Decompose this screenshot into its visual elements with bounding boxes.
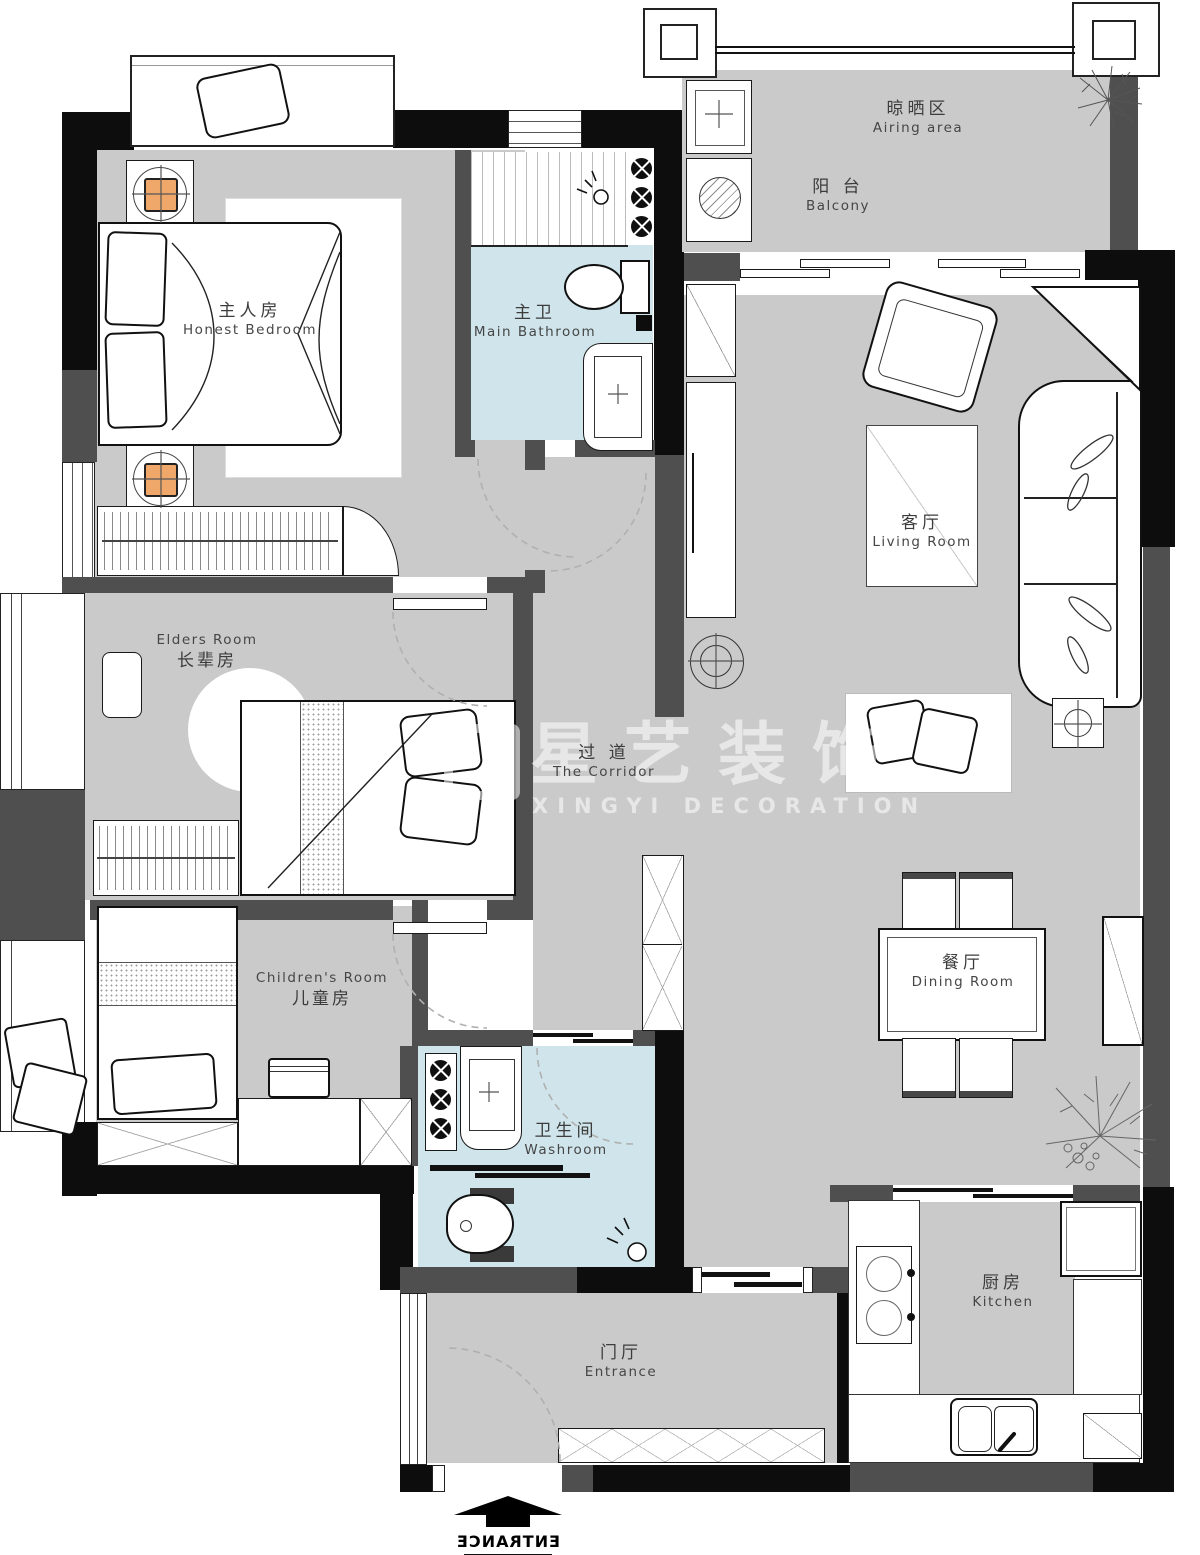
basin bbox=[695, 90, 745, 146]
fridge-inner bbox=[1066, 1207, 1136, 1271]
wall bbox=[562, 1465, 593, 1492]
wall bbox=[593, 1465, 850, 1492]
wall bbox=[393, 110, 508, 148]
tv-rug bbox=[866, 425, 978, 587]
label-balcony: 阳 台 Balcony bbox=[806, 176, 870, 216]
sliding-door-kitchen bbox=[893, 1185, 1073, 1200]
burner bbox=[866, 1300, 902, 1336]
sink-basin bbox=[994, 1406, 1034, 1452]
wall bbox=[684, 253, 740, 281]
cabinet-handle bbox=[692, 453, 694, 553]
kitchen-counter bbox=[1073, 1279, 1142, 1395]
label-corridor: 过 道 The Corridor bbox=[553, 742, 655, 782]
shower-screen bbox=[430, 1165, 563, 1171]
wardrobe-elders bbox=[93, 820, 239, 896]
side-table-circle bbox=[1064, 709, 1092, 737]
washing-machine bbox=[686, 158, 752, 242]
tall-cabinet bbox=[686, 382, 736, 618]
corridor-cabinet bbox=[642, 855, 684, 1031]
sliding-door-panel bbox=[734, 1282, 802, 1287]
toilet-bowl bbox=[446, 1194, 514, 1254]
sofa-seat-line bbox=[1024, 583, 1116, 585]
wall bbox=[62, 577, 393, 593]
valve-icon bbox=[631, 187, 652, 208]
wardrobe-rod bbox=[102, 540, 338, 542]
appliance bbox=[1083, 1413, 1142, 1459]
valve-icon bbox=[430, 1089, 451, 1110]
floor-lamp-inner bbox=[700, 645, 732, 677]
fridge bbox=[1060, 1201, 1142, 1277]
floor-plan: 星艺装饰 XINGYI DECORATION 主人房 Honest Bedroo… bbox=[0, 0, 1200, 1555]
kitchen-sink bbox=[950, 1398, 1038, 1456]
window-entrance bbox=[400, 1293, 427, 1465]
wall bbox=[487, 900, 533, 920]
dining-chair bbox=[959, 1038, 1013, 1098]
wall bbox=[513, 593, 533, 900]
valve-icon bbox=[631, 158, 652, 179]
label-washroom: 卫生间 Washroom bbox=[524, 1120, 607, 1160]
stove-knob bbox=[907, 1313, 915, 1321]
sliding-door-panel bbox=[893, 1188, 993, 1192]
wall bbox=[62, 370, 97, 462]
valve-icon bbox=[430, 1118, 451, 1139]
toilet-drain bbox=[460, 1220, 472, 1232]
column-core bbox=[660, 24, 698, 60]
door-jamb bbox=[803, 1267, 813, 1293]
side-table bbox=[1052, 698, 1104, 748]
basin bbox=[469, 1059, 515, 1131]
label-children-room: Children's Room 儿童房 bbox=[256, 970, 388, 1010]
floor-corridor bbox=[533, 593, 655, 733]
wall bbox=[1143, 547, 1170, 1187]
entrance-arrow-stem bbox=[486, 1514, 530, 1527]
sliding-door-panel bbox=[533, 1033, 593, 1037]
pillow bbox=[110, 1052, 218, 1115]
washroom-sink bbox=[460, 1046, 522, 1150]
blanket-band bbox=[99, 962, 236, 1006]
door-jamb bbox=[432, 1465, 445, 1492]
cabinet bbox=[686, 284, 736, 377]
label-living-room: 客厅 Living Room bbox=[872, 512, 971, 552]
lamp-base bbox=[144, 463, 178, 497]
door-leaf bbox=[393, 922, 487, 934]
basin bbox=[594, 356, 642, 438]
wall bbox=[62, 112, 97, 370]
armchair-seat bbox=[876, 297, 985, 399]
cabinet-cell bbox=[643, 946, 682, 1029]
jar bbox=[268, 1058, 330, 1098]
lamp-base bbox=[144, 178, 178, 212]
window bbox=[508, 110, 582, 148]
wall bbox=[455, 150, 471, 440]
balcony-parapet bbox=[715, 46, 1075, 48]
sliding-door-washroom bbox=[533, 1030, 633, 1046]
label-airing-area: 晾晒区 Airing area bbox=[873, 98, 963, 138]
vanity-sink bbox=[583, 343, 653, 451]
sofa-back-line bbox=[1116, 392, 1118, 698]
chair bbox=[102, 652, 142, 718]
column-core bbox=[1092, 20, 1136, 60]
nightstand bbox=[126, 160, 194, 228]
wall bbox=[655, 1030, 684, 1270]
sliding-door-panel bbox=[573, 1039, 633, 1043]
sliding-door-panel bbox=[702, 1272, 770, 1277]
balcony-sink bbox=[686, 80, 752, 154]
wall bbox=[0, 790, 85, 940]
shoe-cabinet-cells bbox=[559, 1429, 824, 1462]
window bbox=[62, 462, 95, 583]
wall bbox=[655, 455, 684, 717]
dining-chair bbox=[902, 872, 956, 932]
toilet-tank bbox=[620, 260, 650, 314]
entrance-arrow-icon bbox=[454, 1496, 562, 1515]
washer-drum bbox=[699, 177, 741, 219]
wall bbox=[400, 1267, 577, 1293]
shower-screen bbox=[475, 1173, 590, 1178]
wall bbox=[813, 1267, 850, 1293]
label-entrance-hall: 门厅 Entrance bbox=[585, 1342, 658, 1382]
cabinet bbox=[360, 1098, 412, 1166]
cabinet-cell bbox=[643, 856, 682, 945]
pillow bbox=[399, 707, 484, 778]
pillow bbox=[399, 775, 484, 846]
wardrobe-rod bbox=[97, 857, 235, 859]
dining-chair bbox=[959, 872, 1013, 932]
shoe-cabinet bbox=[558, 1428, 825, 1463]
cushion bbox=[911, 707, 980, 776]
floor-entrance-upper bbox=[684, 1185, 850, 1267]
wall bbox=[400, 1465, 432, 1492]
sliding-door-panel bbox=[800, 259, 890, 268]
wall bbox=[455, 440, 475, 457]
label-elders-room: Elders Room 长辈房 bbox=[157, 632, 258, 672]
sliding-door-panel bbox=[1000, 269, 1080, 278]
bench bbox=[97, 1122, 238, 1166]
valve-icon bbox=[430, 1060, 451, 1081]
wall bbox=[582, 110, 654, 148]
wall bbox=[428, 1030, 533, 1046]
pillow bbox=[104, 331, 167, 429]
label-main-bathroom: 主卫 Main Bathroom bbox=[474, 302, 596, 342]
sofa-seat-line bbox=[1024, 497, 1116, 499]
wall-accent bbox=[636, 315, 652, 331]
sink-basin bbox=[958, 1406, 992, 1452]
label-master-bedroom: 主人房 Honest Bedroom bbox=[183, 300, 317, 340]
wall bbox=[655, 252, 684, 455]
dining-chair bbox=[902, 1038, 956, 1098]
wall bbox=[1110, 77, 1138, 255]
wall bbox=[487, 577, 530, 593]
stove bbox=[856, 1246, 912, 1344]
nightstand bbox=[126, 445, 194, 513]
door-leaf bbox=[393, 598, 487, 610]
sideboard bbox=[1102, 916, 1144, 1046]
bay-window bbox=[0, 593, 85, 790]
valve-icon bbox=[631, 216, 652, 237]
floor-lamp bbox=[690, 635, 744, 689]
desk bbox=[238, 1098, 360, 1166]
wall bbox=[850, 1463, 1093, 1492]
sliding-door-panel bbox=[740, 269, 830, 278]
label-dining-room: 餐厅 Dining Room bbox=[912, 952, 1015, 992]
wall bbox=[663, 700, 684, 717]
sliding-door-panel bbox=[938, 259, 1026, 268]
wall bbox=[1093, 1463, 1174, 1492]
pillow bbox=[104, 231, 167, 327]
sofa bbox=[1018, 380, 1142, 708]
sliding-door-entrance bbox=[702, 1267, 803, 1293]
wardrobe-master bbox=[97, 506, 343, 576]
burner bbox=[866, 1256, 902, 1292]
entrance-label: ENTRANCE bbox=[452, 1532, 564, 1551]
shower-area bbox=[471, 152, 628, 247]
wall bbox=[525, 440, 545, 470]
wall bbox=[1085, 250, 1138, 280]
entrance-marker: ENTRANCE bbox=[452, 1496, 564, 1555]
wall bbox=[62, 1166, 414, 1194]
wall bbox=[577, 1267, 692, 1293]
door-jamb bbox=[692, 1267, 702, 1293]
label-kitchen: 厨房 Kitchen bbox=[972, 1272, 1033, 1312]
blanket-band bbox=[300, 702, 344, 894]
stove-knob bbox=[907, 1269, 915, 1277]
wall bbox=[1143, 1187, 1174, 1492]
wall bbox=[1073, 1185, 1140, 1202]
wall bbox=[1138, 250, 1175, 547]
balcony-parapet bbox=[715, 52, 1075, 54]
wall bbox=[633, 1030, 655, 1046]
sliding-door-panel bbox=[973, 1194, 1073, 1198]
